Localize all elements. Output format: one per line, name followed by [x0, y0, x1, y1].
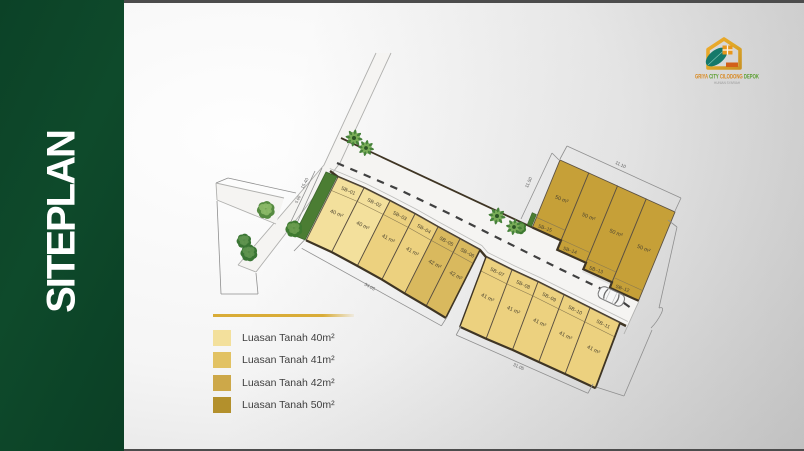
svg-text:HUNIAN SYARIAH: HUNIAN SYARIAH	[714, 81, 740, 85]
svg-text:GRIYA CITY CILODONG DEPOK: GRIYA CITY CILODONG DEPOK	[695, 75, 759, 81]
svg-text:11.10: 11.10	[615, 160, 628, 169]
svg-text:11.50: 11.50	[524, 176, 533, 189]
svg-text:34.05: 34.05	[363, 282, 376, 292]
svg-text:31.05: 31.05	[512, 362, 525, 371]
